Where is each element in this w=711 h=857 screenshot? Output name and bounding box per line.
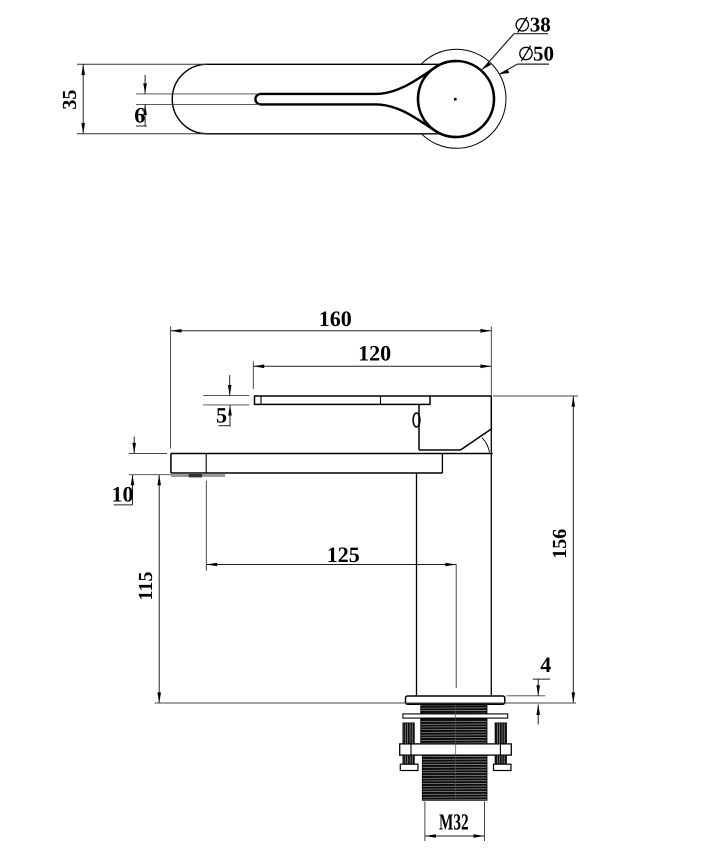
svg-text:38: 38 — [530, 13, 551, 37]
svg-text:M32: M32 — [439, 810, 469, 835]
svg-text:120: 120 — [358, 341, 391, 366]
svg-text:50: 50 — [533, 42, 554, 66]
svg-text:115: 115 — [135, 572, 157, 601]
svg-text:156: 156 — [549, 529, 571, 559]
svg-text:5: 5 — [216, 403, 227, 428]
svg-text:35: 35 — [59, 90, 81, 110]
svg-text:160: 160 — [319, 306, 352, 331]
svg-text:4: 4 — [540, 652, 551, 677]
svg-text:6: 6 — [134, 103, 145, 128]
svg-text:125: 125 — [327, 542, 360, 567]
svg-text:10: 10 — [112, 482, 134, 507]
